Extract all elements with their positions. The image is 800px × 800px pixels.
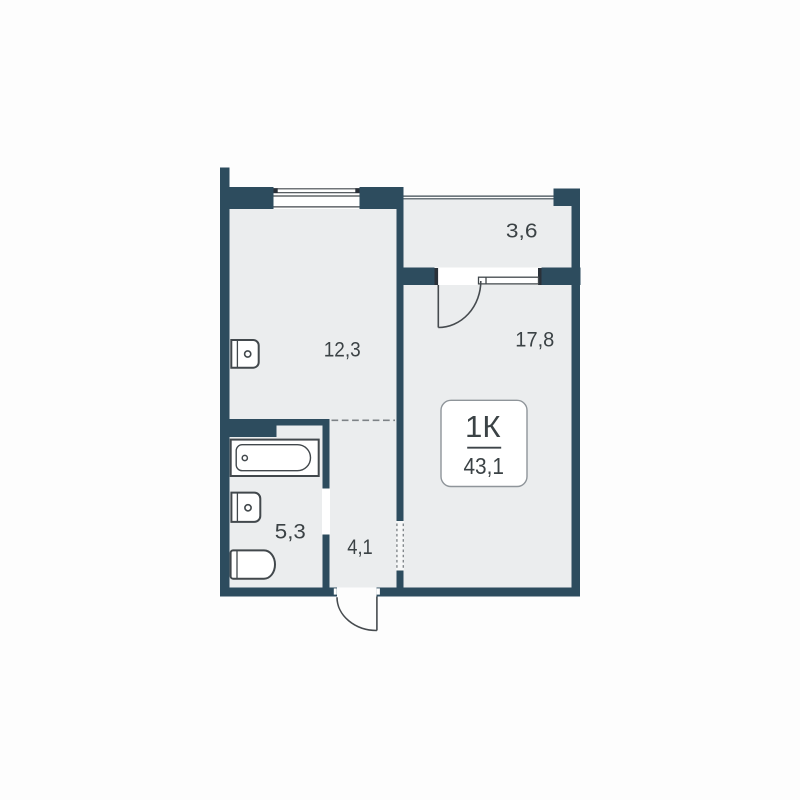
svg-text:12,3: 12,3 xyxy=(324,337,361,361)
svg-text:17,8: 17,8 xyxy=(515,327,554,351)
svg-text:3,6: 3,6 xyxy=(506,220,538,242)
svg-text:43,1: 43,1 xyxy=(463,453,504,479)
svg-text:4,1: 4,1 xyxy=(347,535,373,559)
svg-text:5,3: 5,3 xyxy=(275,521,306,544)
svg-text:1К: 1К xyxy=(465,410,501,444)
